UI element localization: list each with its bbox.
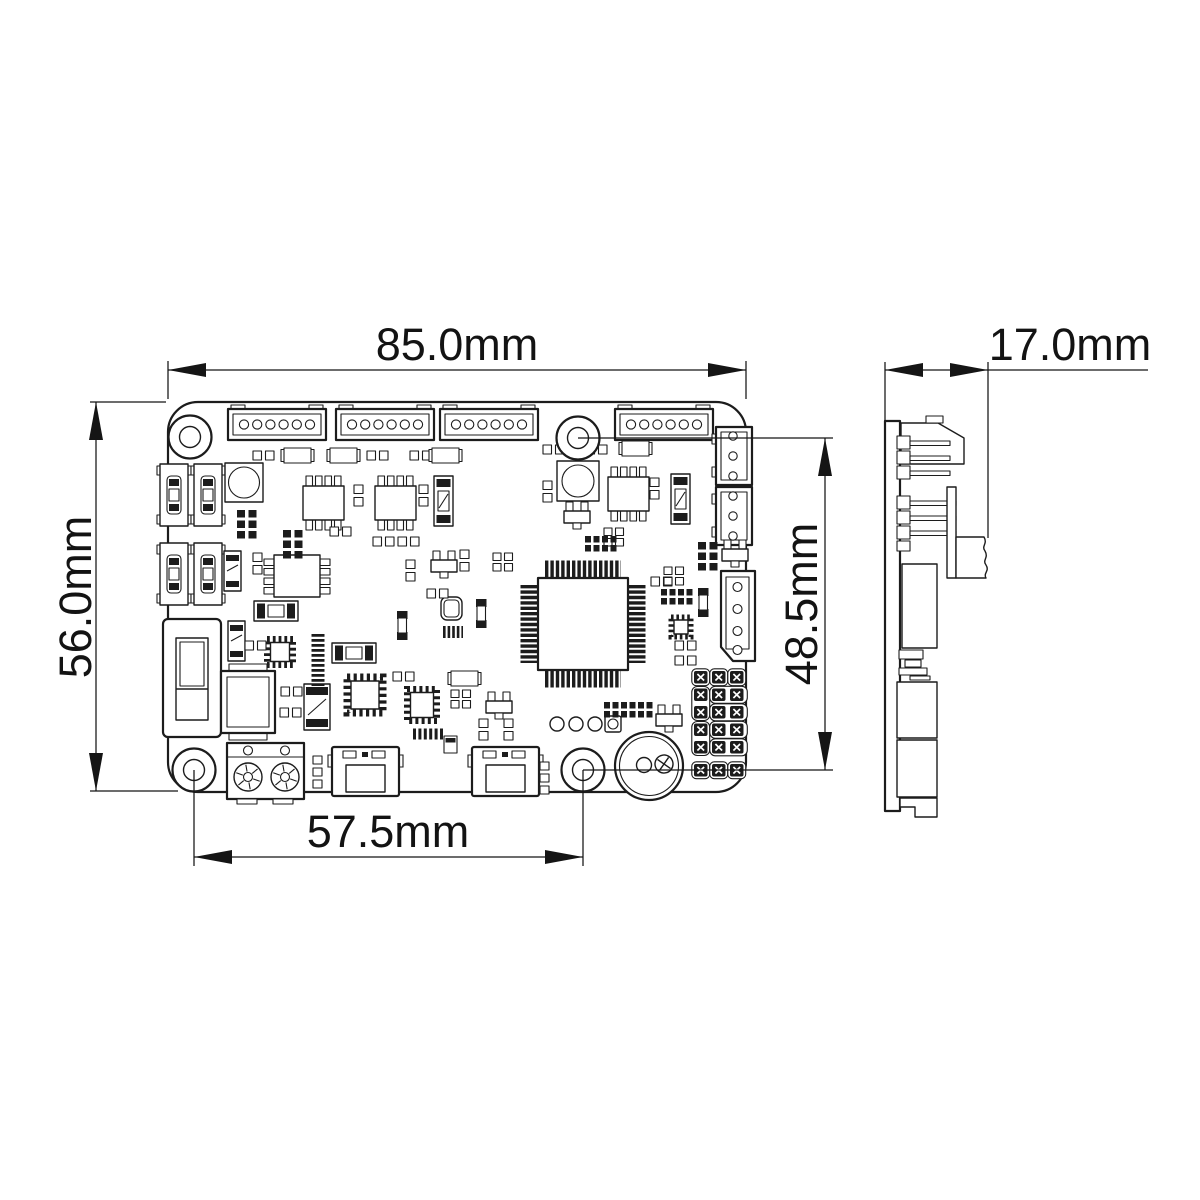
push-button-2: [557, 461, 599, 501]
side-connector-body: [947, 487, 956, 578]
tact-switch-4: [191, 543, 225, 605]
smd-pads: [313, 756, 322, 788]
jst-connector-1: [228, 405, 326, 440]
qfn-ic-3: [407, 689, 437, 721]
arrowhead-left-icon: [194, 850, 232, 864]
arrowhead-left-icon: [168, 363, 206, 377]
pcb-front-view: [157, 402, 755, 804]
edge-connector-1: [712, 427, 752, 485]
dim-label-hole-spacing-horizontal: 57.5mm: [307, 806, 470, 857]
mcu-qfp-chip: [529, 569, 637, 679]
smd-part: [327, 448, 360, 463]
screw-terminal-block: [227, 743, 304, 804]
qfn-ic-4: [671, 617, 691, 637]
edge-connector-2: [712, 487, 752, 545]
smd-resistor: [397, 611, 408, 640]
power-slide-switch: [163, 619, 221, 737]
side-bottom-foot: [900, 798, 937, 817]
smd-part: [429, 448, 462, 463]
diode: [671, 474, 690, 524]
pcb-dimension-drawing: 85.0mm 56.0mm 57.5mm 48.5mm 17.0mm: [0, 0, 1200, 1200]
arrowhead-up-icon: [818, 438, 832, 476]
mounting-hole-top-left: [169, 416, 212, 459]
side-slide-switch: [956, 537, 987, 578]
tact-switch-2: [191, 464, 225, 526]
jst-connector-3: [440, 405, 538, 440]
edge-connector-4pin: [721, 571, 755, 661]
pcb-side-view: [885, 416, 987, 817]
smd-capacitor: [304, 684, 330, 730]
arrowhead-right-icon: [708, 363, 746, 377]
dim-label-board-width: 85.0mm: [376, 319, 539, 370]
diode: [332, 643, 376, 663]
qfn-ic-2: [347, 677, 383, 713]
usb-port-2: [468, 747, 543, 796]
smd-part: [444, 736, 457, 753]
dim-label-hole-spacing-vertical: 48.5mm: [776, 523, 827, 686]
soic-ic-4: [264, 555, 330, 597]
diode: [254, 601, 298, 621]
usb-port-1: [328, 747, 403, 796]
arrowhead-down-icon: [818, 732, 832, 770]
side-component-box-1: [902, 564, 937, 648]
dimension-board-width: 85.0mm: [168, 319, 746, 399]
diode: [434, 476, 453, 526]
side-component-box-2: [897, 682, 937, 738]
side-small-parts: [899, 650, 930, 680]
qfn-ic-1: [267, 639, 293, 665]
arrowhead-up-icon: [89, 402, 103, 440]
push-button-1: [225, 463, 263, 502]
smd-pads: [540, 762, 549, 794]
arrowhead-left-icon: [885, 363, 923, 377]
smd-resistor: [476, 599, 487, 628]
jst-connector-4: [615, 405, 713, 440]
side-connector-cap: [926, 416, 943, 423]
side-component-box-3: [897, 740, 937, 797]
arrowhead-down-icon: [89, 753, 103, 791]
jst-connector-2: [336, 405, 434, 440]
smd-capacitor: [228, 621, 245, 661]
crystal-oscillator: [441, 597, 462, 620]
arrowhead-right-icon: [950, 363, 988, 377]
power-inductor: [221, 664, 275, 740]
smd-part: [619, 441, 652, 456]
buzzer: [615, 732, 683, 800]
jumper-pin-grid: [692, 669, 748, 779]
smd-resistor: [698, 588, 709, 617]
smd-part: [448, 671, 481, 686]
tact-switch-3: [157, 543, 191, 605]
smd-part: [281, 448, 314, 463]
dim-label-board-height: 56.0mm: [50, 516, 101, 679]
arrowhead-right-icon: [545, 850, 583, 864]
smd-capacitor: [224, 551, 241, 591]
drawing-canvas: 85.0mm 56.0mm 57.5mm 48.5mm 17.0mm: [0, 0, 1200, 1200]
dim-label-side-width: 17.0mm: [989, 319, 1152, 370]
tact-switch-1: [157, 464, 191, 526]
